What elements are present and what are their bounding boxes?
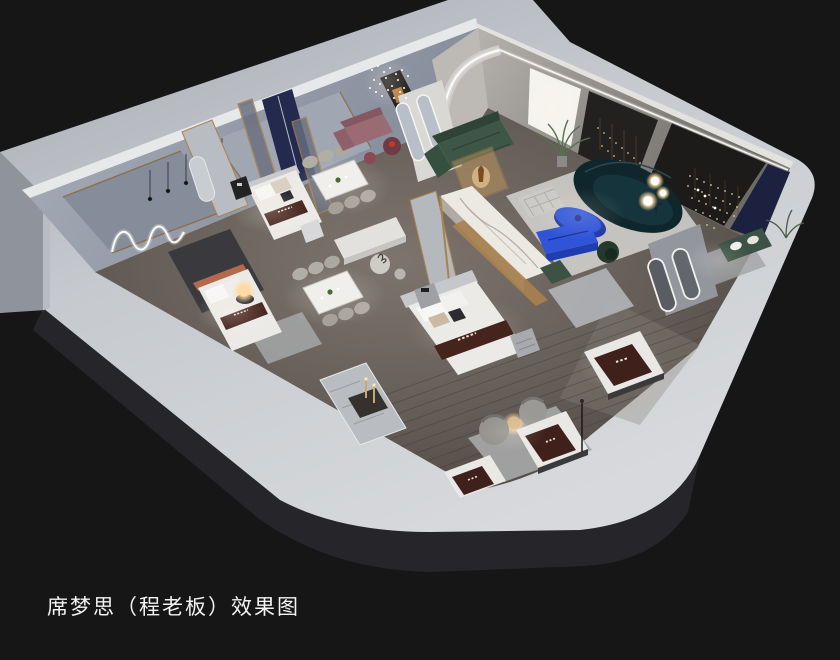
stool <box>395 269 406 280</box>
pouf <box>364 152 376 164</box>
render-canvas <box>0 0 840 660</box>
caption-text: 席梦思（程老板）效果图 <box>47 591 300 621</box>
vase <box>478 166 484 182</box>
round-table <box>370 254 390 274</box>
showroom-rendering: 席梦思（程老板）效果图 <box>0 0 840 660</box>
sparkle-chandelier <box>364 58 412 106</box>
